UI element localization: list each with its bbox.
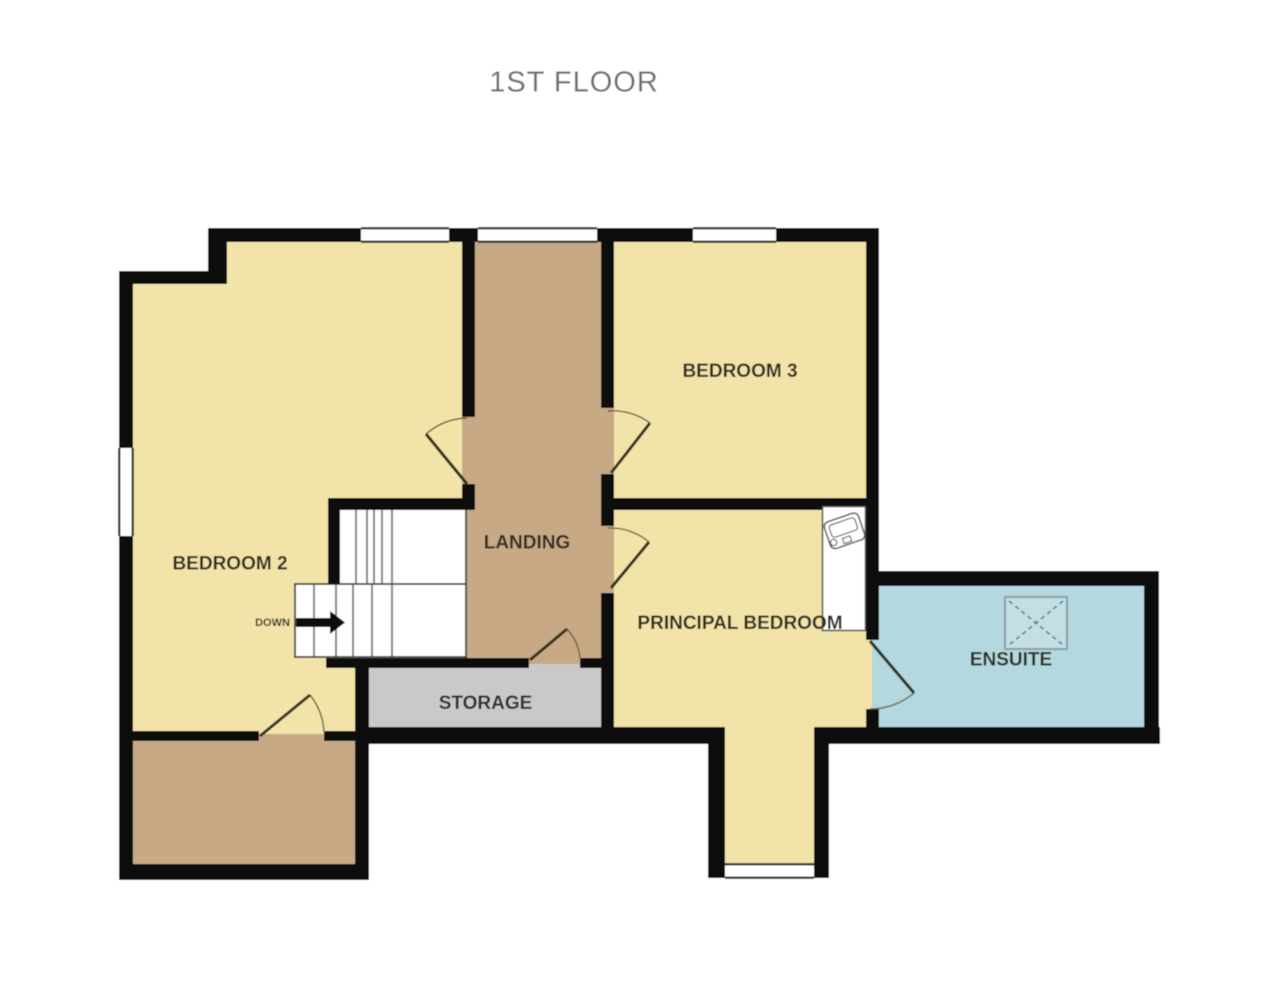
- svg-text:ENSUITE: ENSUITE: [970, 650, 1052, 671]
- svg-text:LANDING: LANDING: [484, 533, 571, 554]
- svg-text:1ST FLOOR: 1ST FLOOR: [489, 67, 659, 99]
- svg-text:PRINCIPAL BEDROOM: PRINCIPAL BEDROOM: [637, 613, 842, 634]
- svg-text:BEDROOM 2: BEDROOM 2: [172, 554, 287, 575]
- svg-text:DOWN: DOWN: [255, 617, 290, 629]
- svg-text:STORAGE: STORAGE: [439, 693, 533, 714]
- svg-text:BEDROOM 3: BEDROOM 3: [682, 361, 797, 382]
